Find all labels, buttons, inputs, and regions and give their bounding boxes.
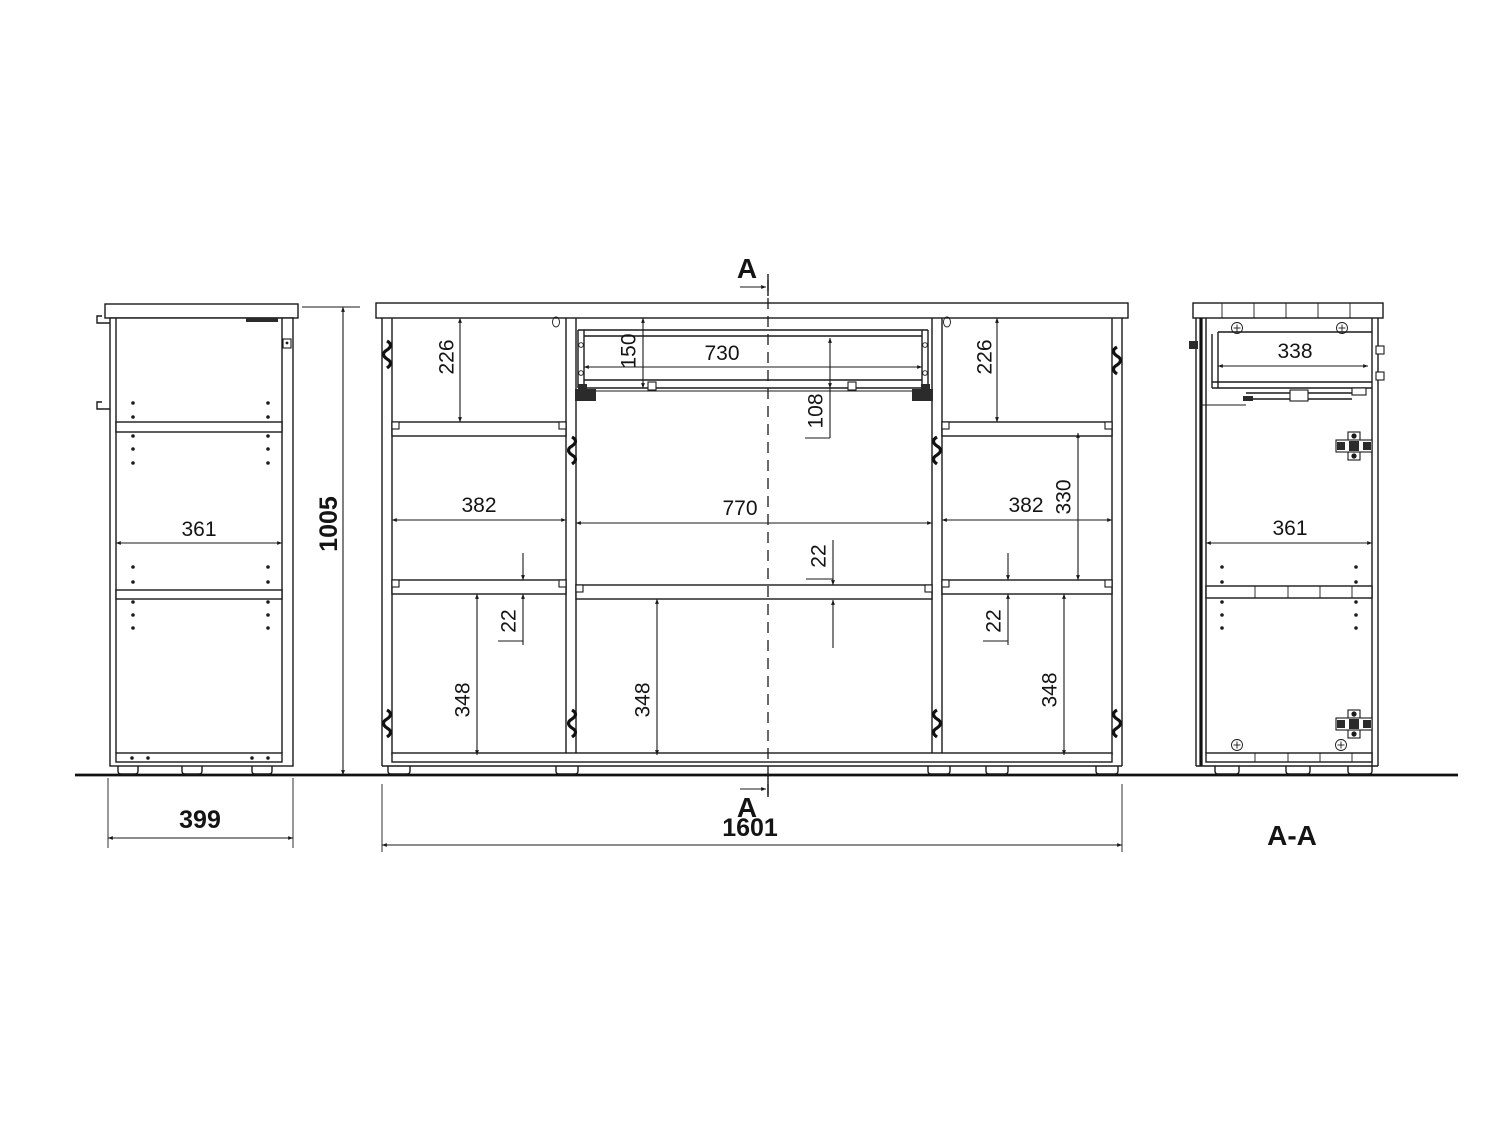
dim-side-height: 1005: [315, 496, 343, 552]
foot: [252, 766, 272, 774]
hinge: [569, 710, 576, 737]
dim-side-inner-width: 361: [181, 518, 216, 541]
shelf: [392, 422, 566, 436]
dim-drawer-width: 730: [704, 342, 739, 365]
furniture-technical-drawing: 361 1005 399: [0, 0, 1500, 1125]
foot: [1348, 766, 1372, 774]
hinge: [1114, 710, 1121, 737]
section-view: 338 361 A-A: [1189, 303, 1384, 851]
hinge: [934, 710, 941, 737]
dim-front-mid-center-width: 770: [722, 497, 757, 520]
drawer-slide: [912, 389, 933, 401]
shelf: [576, 585, 932, 599]
label-section-a-top: A: [737, 253, 757, 284]
drawer-slide: [921, 384, 930, 389]
foot: [388, 766, 410, 774]
foot: [1286, 766, 1310, 774]
foot: [118, 766, 138, 774]
hinge: [934, 437, 941, 464]
bottom-panel: [1206, 753, 1372, 762]
dim-front-bottom-left-height: 348: [452, 682, 475, 717]
dim-shelf-thickness-left: 22: [498, 609, 521, 632]
hinge: [384, 341, 391, 368]
wall-hook-mid: [97, 402, 110, 409]
dim-front-mid-right-height: 330: [1053, 479, 1076, 514]
shelf: [392, 580, 566, 594]
dim-drawer-front-height: 150: [618, 333, 641, 368]
dim-drawer-side-height: 108: [805, 393, 828, 428]
drawer-slide: [578, 384, 587, 389]
hinge-plate: [1336, 432, 1372, 460]
shelf: [942, 580, 1112, 594]
foot: [986, 766, 1008, 774]
dim-front-top-right-height: 226: [974, 339, 997, 374]
drawer-clip: [848, 382, 856, 390]
dim-front-bottom-right-height: 348: [1039, 672, 1062, 707]
shelf: [942, 422, 1112, 436]
side-view: 361 1005 399: [97, 304, 360, 848]
foot: [556, 766, 578, 774]
foot: [182, 766, 202, 774]
bottom-panel: [116, 753, 282, 762]
dim-front-mid-left-width: 382: [461, 494, 496, 517]
label-section-a-bottom: A: [737, 792, 757, 823]
dim-front-bottom-center-height: 348: [632, 682, 655, 717]
shelf: [1206, 586, 1372, 598]
dim-shelf-thickness-right: 22: [983, 609, 1006, 632]
dim-front-top-left-height: 226: [436, 339, 459, 374]
dim-section-drawer-depth: 338: [1277, 340, 1312, 363]
hinge: [569, 437, 576, 464]
wall-hook-side: [1189, 341, 1198, 349]
dim-front-mid-right-width: 382: [1008, 494, 1043, 517]
foot: [1096, 766, 1118, 774]
hinge: [384, 710, 391, 737]
drawer-clip: [648, 382, 656, 390]
foot: [928, 766, 950, 774]
section-cut-line: A A: [737, 253, 768, 823]
dim-section-inner-width: 361: [1272, 517, 1307, 540]
shelf: [116, 590, 282, 599]
front-view: 226 226 150 730 108 382 770 382 330 22 2…: [376, 303, 1128, 852]
hinge-plate: [1336, 710, 1372, 738]
label-section-aa: A-A: [1267, 820, 1317, 851]
foot: [1215, 766, 1239, 774]
bottom-panel: [392, 753, 1112, 762]
top-fitting: [246, 318, 278, 322]
hinge: [1114, 347, 1121, 374]
drawing-page: 361 1005 399: [0, 0, 1500, 1125]
dim-side-depth: 399: [179, 806, 221, 834]
drawer-slide: [575, 389, 596, 401]
shelf: [116, 422, 282, 432]
dim-shelf-thickness-center: 22: [808, 544, 831, 567]
